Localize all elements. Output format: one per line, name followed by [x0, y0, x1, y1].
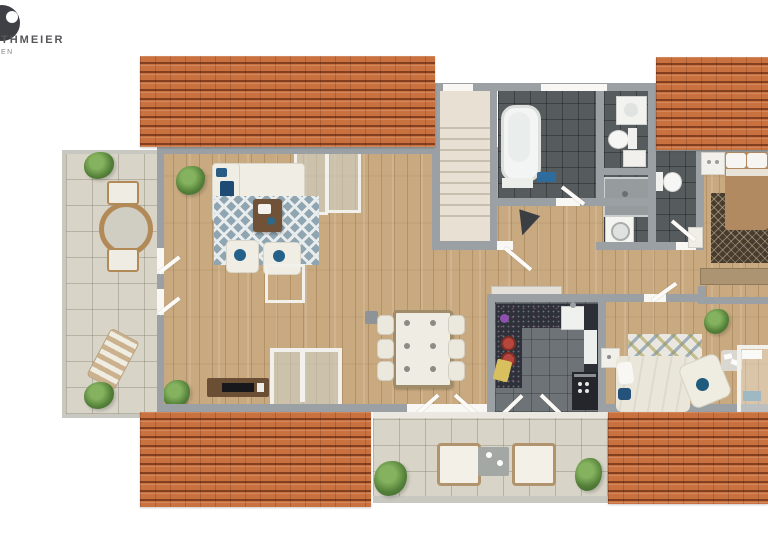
guest-bed-sheet — [726, 169, 768, 176]
toilet-tank — [628, 128, 637, 149]
balcony-railing — [373, 496, 608, 503]
bedroom-armchair-cushion — [696, 378, 709, 391]
oven-control — [585, 382, 589, 386]
oven-handle — [574, 374, 596, 377]
vanity-basin — [624, 103, 638, 117]
stair-block-wall-right — [648, 83, 656, 250]
bed-pillow-blue — [618, 388, 631, 400]
terrace-chair-south — [107, 248, 139, 272]
balcony-table-decor — [497, 460, 503, 466]
stair-wall-inner — [490, 91, 497, 241]
toilet-bowl — [608, 130, 629, 149]
balcony-armchair-right — [512, 443, 556, 486]
bath-window — [541, 84, 607, 91]
tv-screen — [222, 383, 254, 392]
bedroom-wall-top-b — [666, 294, 702, 302]
oven-control — [578, 382, 582, 386]
shower-drain — [622, 191, 628, 197]
desk-item-blue — [743, 391, 761, 401]
wall-left-living — [157, 146, 164, 412]
staircase-steps — [440, 118, 492, 218]
balcony-table — [478, 447, 509, 476]
guest-bed-pillow — [726, 153, 746, 168]
place-setting — [404, 320, 410, 326]
place-setting — [430, 343, 436, 349]
bathtub-shelf — [502, 178, 533, 188]
logo-tagline-text: EN — [1, 49, 14, 56]
dining-chair — [448, 315, 465, 335]
place-setting — [430, 366, 436, 372]
place-setting — [430, 320, 436, 326]
logo-company-text: THMEIER — [1, 34, 65, 46]
roof-top-right — [656, 57, 768, 150]
balcony-threshold — [373, 412, 608, 418]
bathtub-basin — [508, 112, 530, 162]
coffee-table-tray — [258, 204, 271, 214]
bath-mat — [537, 172, 556, 182]
tan-sideboard — [700, 268, 768, 285]
wall-top-living — [157, 146, 438, 154]
dining-chair — [448, 339, 465, 359]
kitchen-bowl — [500, 314, 509, 323]
logo-mark-swirl — [6, 11, 18, 23]
sofa-cushion-blue — [216, 168, 227, 177]
guest-bed-pillow — [747, 153, 767, 168]
tv-decor — [257, 383, 264, 392]
bed-pillow-white — [617, 361, 635, 385]
washing-machine-door — [611, 222, 630, 241]
fridge — [584, 330, 597, 364]
wc-toilet-bowl — [663, 172, 682, 192]
roof-top-left — [140, 56, 435, 147]
dining-chair — [377, 315, 394, 335]
place-setting — [404, 343, 410, 349]
armchair-left-cushion — [234, 249, 246, 261]
roof-bottom-left — [140, 412, 371, 507]
bath-cabinet — [623, 150, 646, 167]
oven-control — [585, 389, 589, 393]
wc-toilet-tank — [656, 172, 663, 191]
roof-window-b — [326, 149, 361, 213]
balcony-armchair-left — [437, 443, 481, 486]
guest-dresser-knob — [715, 160, 719, 164]
dining-table — [393, 310, 453, 388]
kitchen-wall-left — [487, 294, 495, 412]
kitchen-sink — [561, 306, 586, 330]
guest-dresser-knob — [707, 160, 711, 164]
stair-window — [443, 84, 473, 91]
floor-plan-rendering: THMEIER EN — [0, 0, 768, 560]
guest-dresser — [701, 152, 725, 175]
stair-wall-bottom — [432, 241, 502, 250]
side-table-frame — [265, 264, 305, 303]
coffee-table-decor — [267, 217, 275, 225]
wall-right-lower — [704, 297, 768, 304]
balcony-table-decor — [486, 452, 492, 458]
logo: THMEIER EN — [0, 0, 140, 70]
kitchen-faucet — [570, 302, 576, 308]
walk-in-shower — [603, 177, 652, 217]
second-bath-wall-bottom — [596, 168, 656, 175]
dining-chair — [377, 361, 394, 381]
dining-chair — [377, 339, 394, 359]
armchair-right-cushion — [273, 250, 285, 262]
bath-divider-wall — [596, 91, 604, 198]
roof-bottom-right — [608, 412, 768, 504]
dining-chair — [448, 361, 465, 381]
terrace-chair-north — [107, 181, 139, 205]
stove-burner — [501, 336, 516, 351]
place-setting — [404, 366, 410, 372]
kitchen-wall-top — [487, 294, 606, 302]
oven-control — [578, 389, 582, 393]
bedroom-wall-top-a — [606, 294, 644, 302]
nightstand-knob — [607, 355, 611, 359]
desk-item-white — [742, 350, 762, 359]
roof-window-south-mullion — [300, 352, 305, 402]
